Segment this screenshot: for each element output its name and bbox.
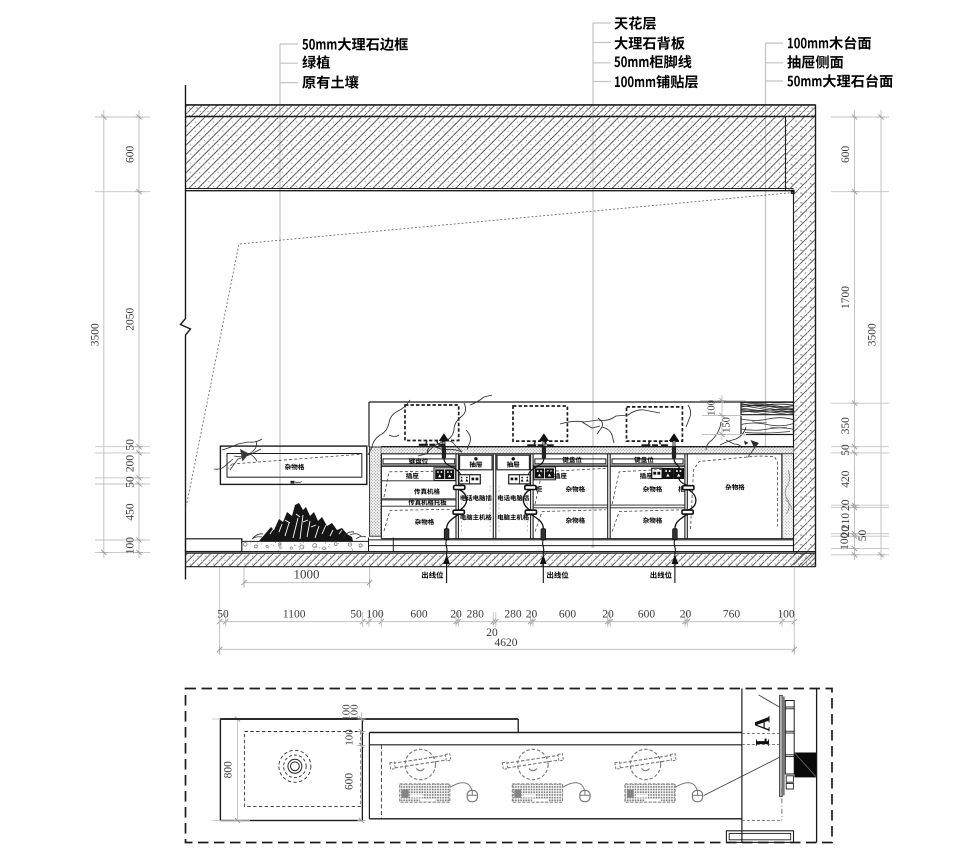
svg-text:800: 800 — [223, 761, 235, 779]
svg-text:200: 200 — [125, 455, 137, 473]
svg-text:350: 350 — [840, 417, 852, 435]
svg-text:50: 50 — [125, 476, 137, 488]
svg-text:20: 20 — [602, 609, 614, 621]
svg-text:420: 420 — [840, 470, 852, 488]
svg-text:20: 20 — [526, 609, 538, 621]
svg-text:1700: 1700 — [840, 286, 852, 309]
svg-text:50: 50 — [350, 609, 362, 621]
svg-text:100: 100 — [349, 704, 361, 720]
svg-text:20: 20 — [840, 499, 852, 511]
svg-text:3500: 3500 — [867, 323, 879, 346]
svg-text:600: 600 — [638, 609, 656, 621]
svg-text:100: 100 — [366, 609, 384, 621]
svg-text:100: 100 — [344, 729, 356, 745]
svg-text:I: I — [752, 738, 774, 746]
svg-text:100: 100 — [777, 609, 795, 621]
svg-text:4620: 4620 — [495, 637, 518, 649]
svg-text:20: 20 — [450, 609, 462, 621]
svg-text:50: 50 — [217, 609, 229, 621]
svg-text:100: 100 — [839, 532, 851, 550]
svg-text:600: 600 — [344, 773, 356, 790]
svg-text:20: 20 — [680, 609, 692, 621]
svg-text:2050: 2050 — [125, 307, 137, 330]
svg-text:A: A — [750, 716, 775, 732]
svg-text:600: 600 — [840, 146, 852, 164]
svg-text:280: 280 — [467, 609, 485, 621]
svg-text:50: 50 — [857, 530, 869, 542]
svg-text:50: 50 — [125, 439, 137, 451]
svg-text:600: 600 — [410, 609, 428, 621]
svg-text:1100: 1100 — [283, 609, 306, 621]
svg-text:600: 600 — [125, 146, 137, 164]
svg-text:100: 100 — [707, 400, 718, 416]
svg-text:600: 600 — [559, 609, 577, 621]
svg-text:450: 450 — [125, 503, 137, 521]
svg-text:50: 50 — [840, 444, 852, 456]
svg-text:280: 280 — [504, 609, 522, 621]
svg-text:100: 100 — [125, 537, 137, 555]
svg-text:3500: 3500 — [89, 323, 101, 346]
svg-text:760: 760 — [723, 609, 741, 621]
svg-text:150: 150 — [722, 417, 733, 433]
svg-text:1000: 1000 — [294, 567, 320, 582]
